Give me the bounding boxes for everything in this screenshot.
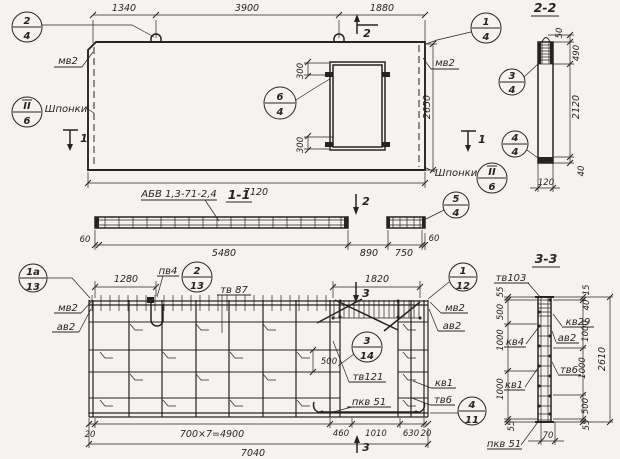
dim-300-bottom: 300 [296, 137, 306, 153]
panel-edge-dashed-lines [94, 45, 419, 167]
callout-top: 3 [509, 71, 516, 82]
label-pv4: пв4 [159, 266, 178, 277]
slab-strips-outline [95, 217, 425, 228]
label-tv6-right: тв6 [434, 395, 452, 406]
label-mv2-right: мв2 [445, 303, 465, 314]
cut2-bottom-arrow [353, 207, 359, 215]
label-shponki-right: Шпонки [435, 168, 478, 179]
dim-60-right: 60 [429, 234, 440, 244]
dim-750: 750 [395, 248, 413, 259]
callout-1a-13: 1а 13 [19, 264, 47, 293]
dim-1820: 1820 [365, 274, 389, 285]
callout-6-4: 6 4 [264, 87, 296, 119]
label-mv2-left: мв2 [58, 56, 78, 67]
dim-1340: 1340 [112, 3, 136, 14]
label-tv6-33: тв6 [560, 365, 578, 376]
callout-bottom: 4 [482, 32, 490, 43]
ref-leader [205, 200, 219, 221]
label-pkv51: пкв 51 [352, 397, 386, 408]
label-av2-left: ав2 [57, 322, 75, 333]
dim-630: 630 [403, 429, 419, 439]
callout-keys-right: II 6 [477, 163, 507, 193]
dim-1000b-right: 1000 [578, 357, 588, 379]
dim-1010: 1010 [365, 429, 387, 439]
dim-5480: 5480 [212, 248, 236, 259]
callout-top: 6 [277, 92, 284, 103]
callout-bottom: 13 [26, 282, 40, 293]
plan-leader-lines [42, 25, 471, 172]
dim-1000a-right: 1000 [581, 320, 591, 342]
dim-55-top-left: 55 [496, 287, 506, 298]
callout-bottom: 4 [23, 31, 31, 42]
dim-20-right: 20 [421, 429, 432, 439]
dim-40-right: 40 [582, 300, 592, 311]
callout-leader [524, 64, 538, 77]
rebar-dim-lines [89, 281, 428, 448]
lintel-band [333, 300, 420, 318]
section22-title: 2-2 [534, 0, 557, 15]
callout-top: 4 [511, 133, 519, 144]
cut-mark-lines [63, 20, 476, 208]
callout-top: 4 [468, 400, 476, 411]
callout-4-4: 4 4 [502, 131, 538, 158]
callout-2-13: 2 13 [182, 262, 212, 292]
dim-15-right: 15 [582, 285, 592, 296]
callout-top: II [488, 167, 496, 178]
label-tv103: тв103 [496, 273, 527, 284]
drawing-canvas: 1 1 2 2 1340 3900 1880 2650 7120 300 300… [0, 0, 620, 459]
dim-40: 40 [577, 166, 587, 177]
label-kv4: кв4 [506, 337, 524, 348]
callout-1-4: 1 4 [471, 13, 501, 43]
label-kv1-right: кв1 [435, 378, 453, 389]
label-pkv51-33: пкв 51 [487, 439, 521, 450]
label-underlines [54, 67, 459, 69]
cut1-right-arrow [465, 145, 471, 152]
section11-title: 1-1 [228, 187, 251, 202]
callout-bottom: 13 [190, 281, 204, 292]
callout-top: 1 [483, 17, 490, 28]
horizontal-bars [89, 322, 428, 398]
dim-300-top: 300 [296, 63, 306, 79]
label-kv1: кв1 [505, 380, 523, 391]
label-tv121: тв121 [353, 372, 384, 383]
dim-50: 50 [555, 28, 565, 39]
callout-bottom: 6 [489, 182, 496, 193]
dim-500: 500 [321, 357, 337, 367]
callout-4-11: 4 11 [458, 397, 486, 426]
slab-end-blocks [95, 217, 425, 228]
label-av2-33: ав2 [558, 333, 576, 344]
top-chord-bar-ticks [92, 295, 326, 311]
dim-890: 890 [360, 248, 378, 259]
bottom-end-block [538, 157, 553, 163]
cut3-mark-lines [356, 282, 357, 453]
dim-500-right: 500 [581, 398, 591, 414]
callout-2-4: 2 4 [12, 12, 42, 42]
callout-bottom: 4 [511, 147, 519, 158]
section11-dim-lines [95, 230, 425, 250]
callout-top: 2 [24, 16, 31, 27]
cut3-bottom-arrow [354, 435, 360, 443]
dim-1000b-left: 1000 [496, 378, 506, 400]
dim-460: 460 [333, 429, 349, 439]
dim-1280: 1280 [114, 274, 138, 285]
dim-7040: 7040 [241, 448, 265, 459]
section-1-1: АБВ 1,3-71-2,4 1-1 60 5480 890 750 60 5 … [80, 187, 469, 259]
callout-1-12: 1 12 [449, 263, 477, 292]
callout-keys-left: II 6 [12, 97, 42, 127]
section-2-2: 2-2 50 490 2120 40 120 3 4 4 4 [499, 0, 587, 192]
dim-500-left: 500 [496, 304, 506, 320]
section33-leaders [521, 283, 562, 445]
lifting-loops [151, 34, 344, 42]
callout-top: II [23, 101, 31, 112]
cut2-bottom-label: 2 [362, 195, 370, 208]
section-3-3: 3-3 тв103 кв4 кв1 пкв 51 кв29 ав2 тв6 55… [487, 251, 613, 450]
drawing-sheet: 1 1 2 2 1340 3900 1880 2650 7120 300 300… [0, 0, 620, 459]
dim-120: 120 [538, 178, 554, 188]
cage-rungs [538, 300, 551, 420]
dim-60-left: 60 [80, 235, 91, 245]
callout-bottom: 12 [456, 281, 470, 292]
dim-55-bottom-left: 55 [507, 421, 517, 432]
callout-5-4: 5 4 [426, 192, 469, 219]
series-ref: АБВ 1,3-71-2,4 [140, 189, 217, 200]
callout-bottom: 11 [465, 415, 479, 426]
callout-top: 3 [364, 336, 371, 347]
slab-void-dividers [105, 217, 420, 228]
label-av2-right: ав2 [443, 321, 461, 332]
section33-title: 3-3 [535, 251, 558, 266]
rebar-leader-lines [47, 276, 458, 413]
dim-700x7: 700×7=4900 [180, 429, 244, 440]
cut2-top-label: 2 [363, 27, 371, 40]
callout-top: 2 [194, 266, 201, 277]
cut1-left-arrow [67, 144, 73, 151]
callout-top: 1а [26, 267, 40, 278]
cut3-bottom-label: 3 [362, 441, 370, 454]
loop-anchor-plate [147, 297, 154, 303]
callout-bottom: 4 [452, 208, 460, 219]
label-shponki-left: Шпонки [45, 104, 88, 115]
cut1-right-label: 1 [478, 133, 486, 146]
callout-top: 1 [460, 266, 467, 277]
dim-1000a-left: 1000 [496, 329, 506, 351]
label-mv2-right: мв2 [435, 58, 455, 69]
dim-70: 70 [543, 431, 554, 441]
dim-490: 490 [572, 45, 582, 61]
plan-view: 1 1 2 2 1340 3900 1880 2650 7120 300 300… [12, 3, 507, 215]
door-opening [330, 62, 385, 150]
rebar-plan: 3 3 1280 1820 500 пв4 тв 87 тв121 кв1 тв… [19, 262, 486, 459]
plan-dimension-ticks [85, 12, 436, 186]
dim-55-right: 55 [582, 420, 592, 431]
callout-3-4: 3 4 [499, 64, 538, 96]
callout-bottom: 6 [24, 116, 31, 127]
callout-bottom: 4 [276, 107, 284, 118]
dim-20-left: 20 [85, 430, 96, 440]
label-mv2-left: мв2 [58, 303, 78, 314]
slab-inner-lines [95, 220, 425, 225]
panel-outline [88, 42, 425, 170]
dim-2650: 2650 [422, 95, 433, 119]
callout-bottom: 14 [360, 351, 374, 362]
cut3-top-label: 3 [362, 287, 370, 300]
dim-1880: 1880 [370, 3, 394, 14]
dim-3900: 3900 [235, 3, 259, 14]
callout-leader [527, 150, 538, 158]
label-tv87: тв 87 [220, 285, 248, 296]
rebar-label-underlines [52, 276, 468, 407]
cut1-left-label: 1 [80, 132, 88, 145]
callout-3-14: 3 14 [352, 332, 382, 362]
callout-top: 5 [453, 194, 460, 205]
callout-leader [426, 210, 444, 219]
callout-bottom: 4 [508, 85, 516, 96]
dim-2120: 2120 [571, 95, 582, 119]
dim-2610: 2610 [597, 347, 608, 371]
opening-embed-marks [325, 72, 390, 147]
